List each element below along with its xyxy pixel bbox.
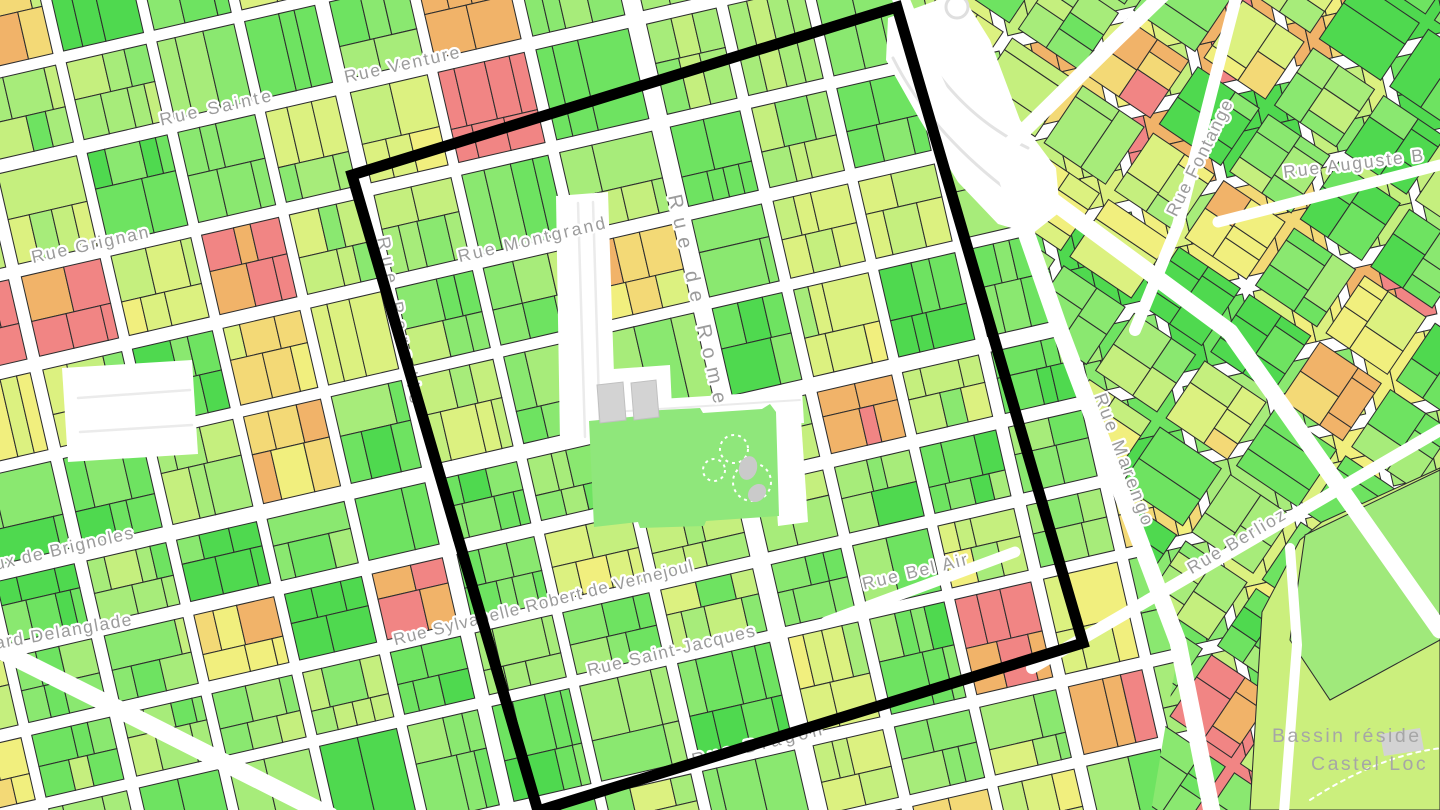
- plaza-left: [62, 360, 198, 462]
- parcel[interactable]: [87, 749, 124, 786]
- map-viewport[interactable]: Rue VentureRue SainteRue GrignanRue Mont…: [0, 0, 1440, 810]
- parcel[interactable]: [859, 766, 899, 805]
- plaza-building-2: [631, 380, 659, 420]
- area-label-castel-loc: Castel Loc: [1311, 753, 1428, 775]
- map-canvas[interactable]: Rue VentureRue SainteRue GrignanRue Mont…: [0, 0, 1440, 810]
- parcel[interactable]: [439, 668, 475, 704]
- parcel[interactable]: [159, 652, 198, 691]
- plaza-building-1: [597, 382, 626, 423]
- area-label-bassin-r-side: Bassin réside: [1272, 725, 1422, 747]
- roundabout: [946, 0, 968, 18]
